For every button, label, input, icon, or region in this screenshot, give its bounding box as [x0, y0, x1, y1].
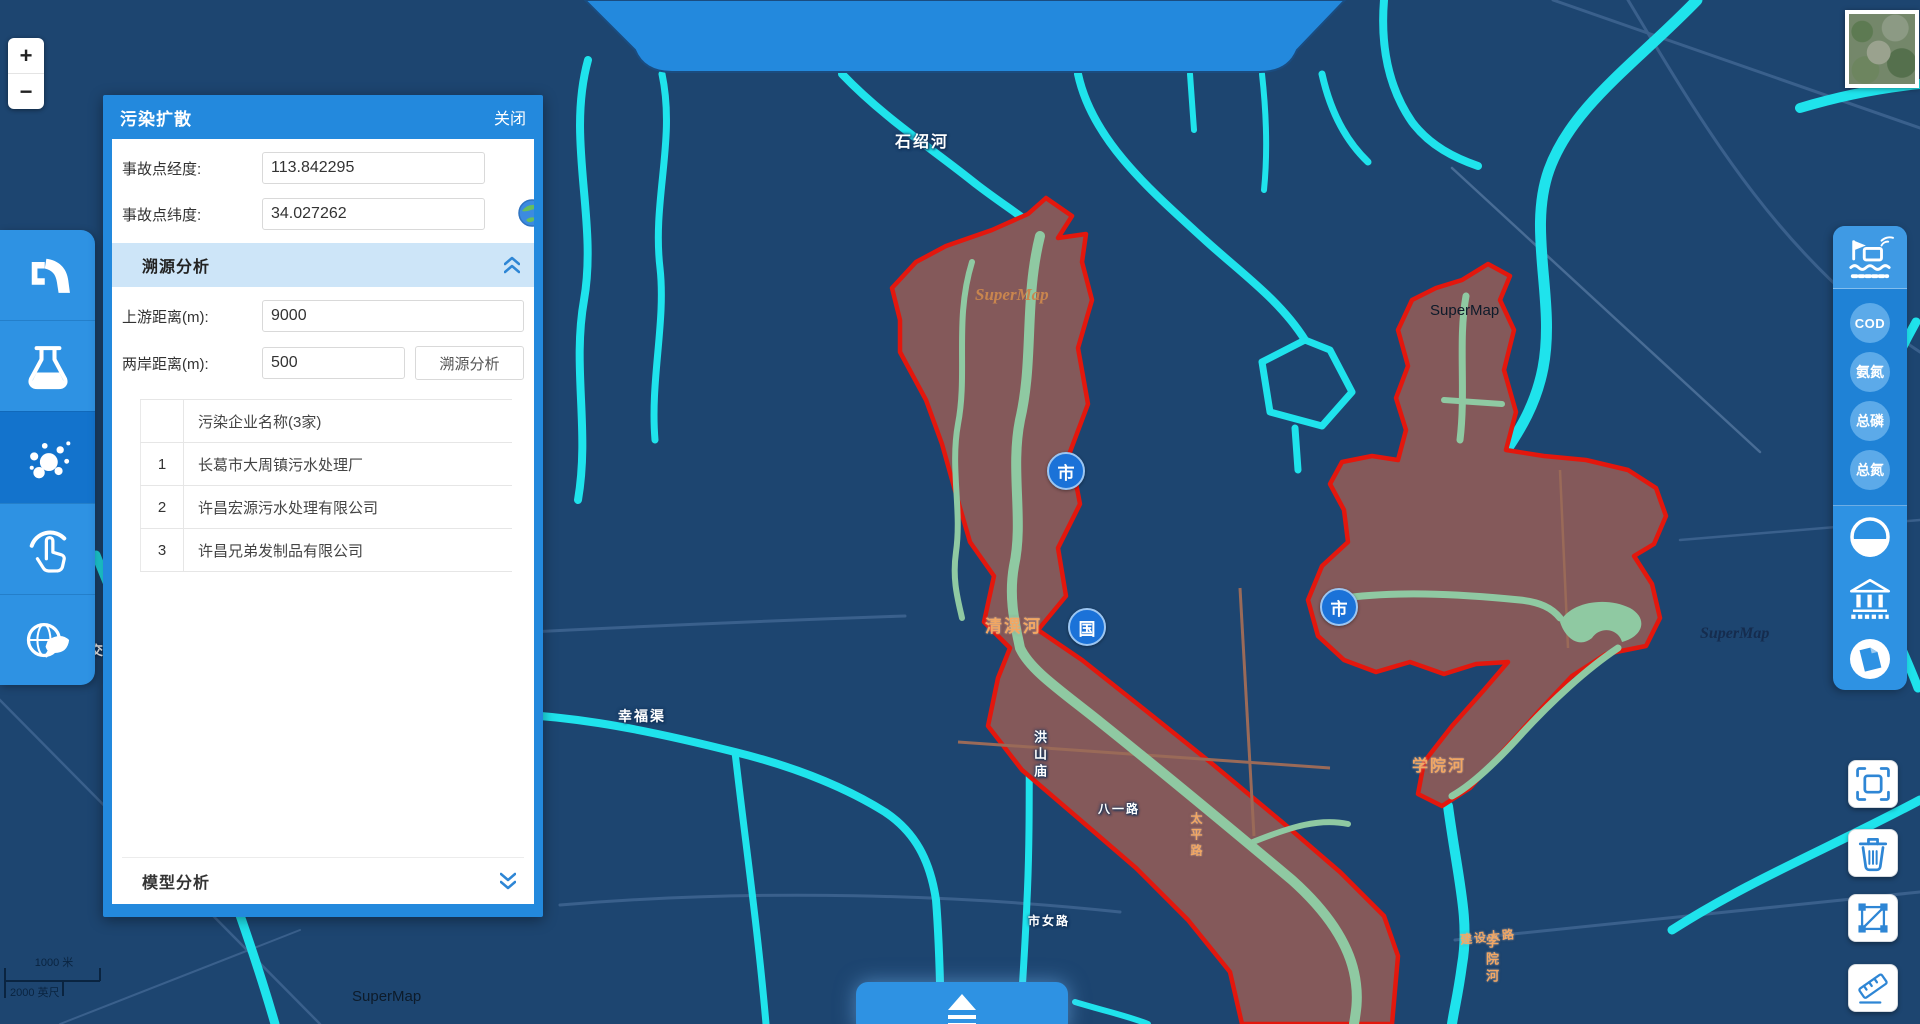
ammonia-layer-button[interactable]: 氨氮 — [1850, 352, 1890, 392]
row-index: 1 — [141, 443, 184, 486]
bank-icon — [1846, 575, 1894, 621]
pipe-icon — [22, 249, 74, 301]
model-section-title: 模型分析 — [142, 869, 500, 893]
trace-section-header[interactable]: 溯源分析 — [112, 243, 534, 287]
longitude-row: 事故点经度: — [122, 152, 524, 184]
facilities-button[interactable] — [1833, 567, 1907, 628]
half-circle-icon — [1847, 514, 1893, 560]
bubbles-icon — [22, 432, 74, 484]
phosphorus-layer-button[interactable]: 总磷 — [1850, 401, 1890, 441]
pipe-tool-button[interactable] — [0, 230, 95, 320]
table-row[interactable]: 1 长葛市大周镇污水处理厂 — [141, 443, 513, 486]
collapse-up-icon[interactable] — [504, 256, 520, 274]
hand-click-icon — [22, 523, 74, 575]
map-application: 石绍河 幸福渠 洪山庙 八一路 太平路 市女路 建设大路 学院河 清潩河 学院河… — [0, 0, 1920, 1024]
table-header-row: 污染企业名称(3家) — [141, 400, 513, 443]
bank-label: 两岸距离(m): — [122, 353, 262, 374]
flask-icon — [22, 340, 74, 392]
eject-icon — [940, 992, 984, 1024]
report-button[interactable] — [1833, 629, 1907, 690]
pollution-diffusion-panel: 污染扩散 关闭 事故点经度: 事故点纬度: 溯源分 — [103, 95, 543, 917]
panel-body: 事故点经度: 事故点纬度: 溯源分析 — [112, 139, 534, 904]
eco-globe-icon — [22, 614, 74, 666]
panel-spacer — [122, 572, 524, 857]
pick-on-map-button[interactable] — [517, 198, 534, 230]
polygon-select-icon — [1853, 898, 1893, 938]
upstream-distance-input[interactable] — [262, 300, 524, 332]
top-banner-collapsed[interactable] — [585, 0, 1345, 72]
bank-distance-input[interactable] — [262, 347, 405, 379]
trash-icon — [1853, 833, 1893, 873]
full-extent-button[interactable] — [1848, 760, 1898, 808]
measure-button[interactable] — [1848, 964, 1898, 1012]
cod-layer-button[interactable]: COD — [1850, 303, 1890, 343]
right-toolbar: COD 氨氮 总磷 总氮 — [1833, 226, 1907, 690]
eco-globe-tool-button[interactable] — [0, 594, 95, 685]
company-name: 许昌宏源污水处理有限公司 — [184, 486, 513, 529]
upstream-label: 上游距离(m): — [122, 306, 262, 327]
row-index: 3 — [141, 529, 184, 572]
clear-button[interactable] — [1848, 829, 1898, 877]
row-index: 2 — [141, 486, 184, 529]
panel-close-button[interactable]: 关闭 — [494, 105, 526, 129]
nitrogen-layer-button[interactable]: 总氮 — [1850, 450, 1890, 490]
table-header: 污染企业名称(3家) — [184, 400, 513, 443]
monitoring-station-icon — [1843, 234, 1897, 280]
bottom-panel-expand-button[interactable] — [856, 982, 1068, 1024]
model-section-header[interactable]: 模型分析 — [122, 857, 524, 904]
basemap-switcher-thumbnail[interactable] — [1845, 10, 1919, 88]
expand-down-icon[interactable] — [500, 872, 516, 890]
panel-header: 污染扩散 关闭 — [112, 95, 534, 139]
polygon-select-button[interactable] — [1848, 894, 1898, 942]
zoom-control: + − — [8, 38, 44, 109]
pollution-company-table: 污染企业名称(3家) 1 长葛市大周镇污水处理厂 2 许昌宏源污水处理有限公司 … — [140, 399, 512, 572]
company-name: 许昌兄弟发制品有限公司 — [184, 529, 513, 572]
monitoring-station-button[interactable] — [1833, 226, 1907, 289]
water-level-button[interactable] — [1833, 506, 1907, 567]
left-toolbar — [0, 230, 95, 685]
longitude-label: 事故点经度: — [122, 158, 262, 179]
latitude-input[interactable] — [262, 198, 485, 230]
upstream-row: 上游距离(m): — [122, 300, 524, 332]
panel-title: 污染扩散 — [120, 105, 192, 130]
trace-section-title: 溯源分析 — [142, 253, 504, 277]
city-badge-2: 市 — [1320, 588, 1358, 626]
hand-select-tool-button[interactable] — [0, 503, 95, 594]
company-name: 长葛市大周镇污水处理厂 — [184, 443, 513, 486]
water-quality-badges: COD 氨氮 总磷 总氮 — [1833, 289, 1907, 506]
diffusion-tool-button[interactable] — [0, 411, 95, 502]
latitude-label: 事故点纬度: — [122, 204, 262, 225]
document-circle-icon — [1847, 636, 1893, 682]
bank-row: 两岸距离(m): 溯源分析 — [122, 346, 524, 380]
expand-icon — [1853, 764, 1893, 804]
zoom-in-button[interactable]: + — [8, 38, 44, 74]
zoom-out-button[interactable]: − — [8, 74, 44, 109]
trace-analysis-button[interactable]: 溯源分析 — [415, 346, 524, 380]
table-row[interactable]: 2 许昌宏源污水处理有限公司 — [141, 486, 513, 529]
measure-icon — [1853, 968, 1893, 1008]
city-badge-1: 市 — [1047, 452, 1085, 490]
flask-tool-button[interactable] — [0, 320, 95, 411]
globe-icon — [517, 198, 534, 228]
longitude-input[interactable] — [262, 152, 485, 184]
table-row[interactable]: 3 许昌兄弟发制品有限公司 — [141, 529, 513, 572]
national-road-badge: 国 — [1068, 608, 1106, 646]
latitude-row: 事故点纬度: — [122, 198, 524, 230]
